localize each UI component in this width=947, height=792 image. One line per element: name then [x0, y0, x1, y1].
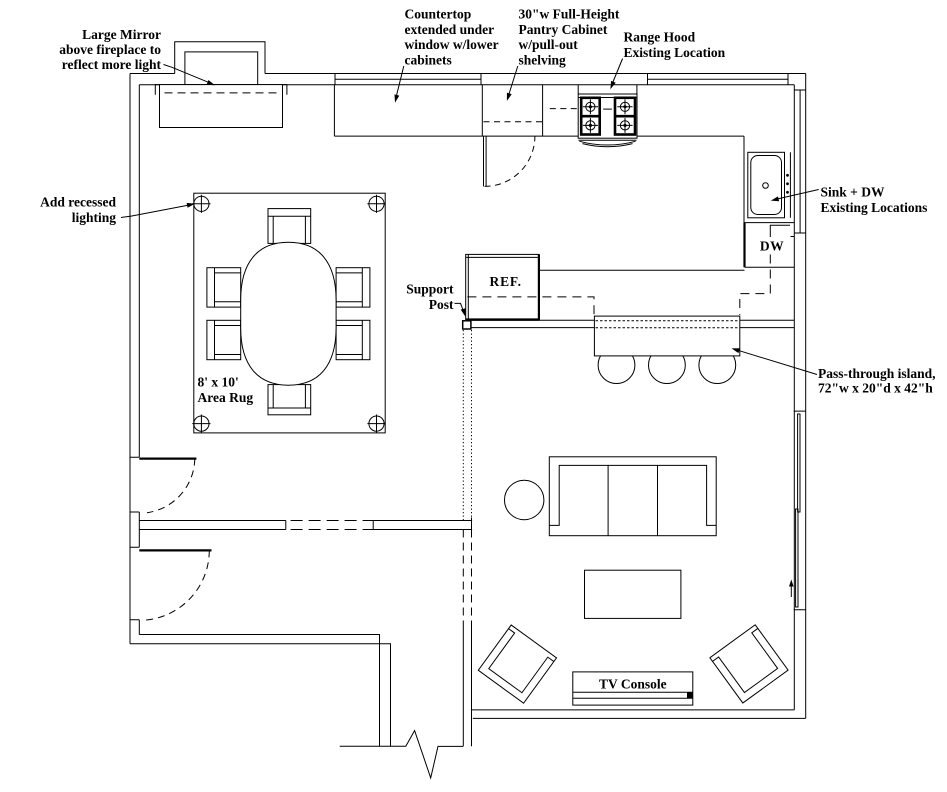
svg-text:window w/lower: window w/lower	[405, 37, 499, 52]
svg-text:Range Hood: Range Hood	[624, 29, 696, 44]
svg-text:Support: Support	[406, 281, 454, 296]
svg-text:REF.: REF.	[490, 274, 522, 289]
svg-text:Pass-through island,: Pass-through island,	[818, 366, 936, 381]
svg-text:above fireplace to: above fireplace to	[59, 42, 161, 57]
svg-text:lighting: lighting	[72, 210, 117, 225]
svg-text:Add recessed: Add recessed	[40, 194, 116, 209]
svg-text:shelving: shelving	[519, 53, 567, 68]
svg-text:TV Console: TV Console	[599, 677, 667, 692]
svg-text:cabinets: cabinets	[405, 53, 452, 68]
svg-text:Large Mirror: Large Mirror	[82, 27, 161, 42]
svg-text:30"w Full-Height: 30"w Full-Height	[519, 6, 620, 21]
svg-text:Existing Locations: Existing Locations	[821, 200, 928, 215]
svg-text:Sink + DW: Sink + DW	[821, 184, 885, 199]
svg-text:8' x 10': 8' x 10'	[198, 374, 239, 389]
svg-text:Countertop: Countertop	[405, 6, 472, 21]
svg-text:Post: Post	[429, 297, 454, 312]
svg-text:72"w x 20"d x 42"h: 72"w x 20"d x 42"h	[818, 380, 933, 395]
svg-text:Existing Location: Existing Location	[624, 45, 726, 60]
svg-text:Area Rug: Area Rug	[198, 390, 254, 405]
svg-text:DW: DW	[760, 239, 784, 254]
svg-text:reflect more light: reflect more light	[62, 57, 162, 72]
svg-text:extended under: extended under	[405, 22, 495, 37]
svg-text:w/pull-out: w/pull-out	[519, 37, 579, 52]
svg-text:Pantry Cabinet: Pantry Cabinet	[519, 22, 608, 37]
